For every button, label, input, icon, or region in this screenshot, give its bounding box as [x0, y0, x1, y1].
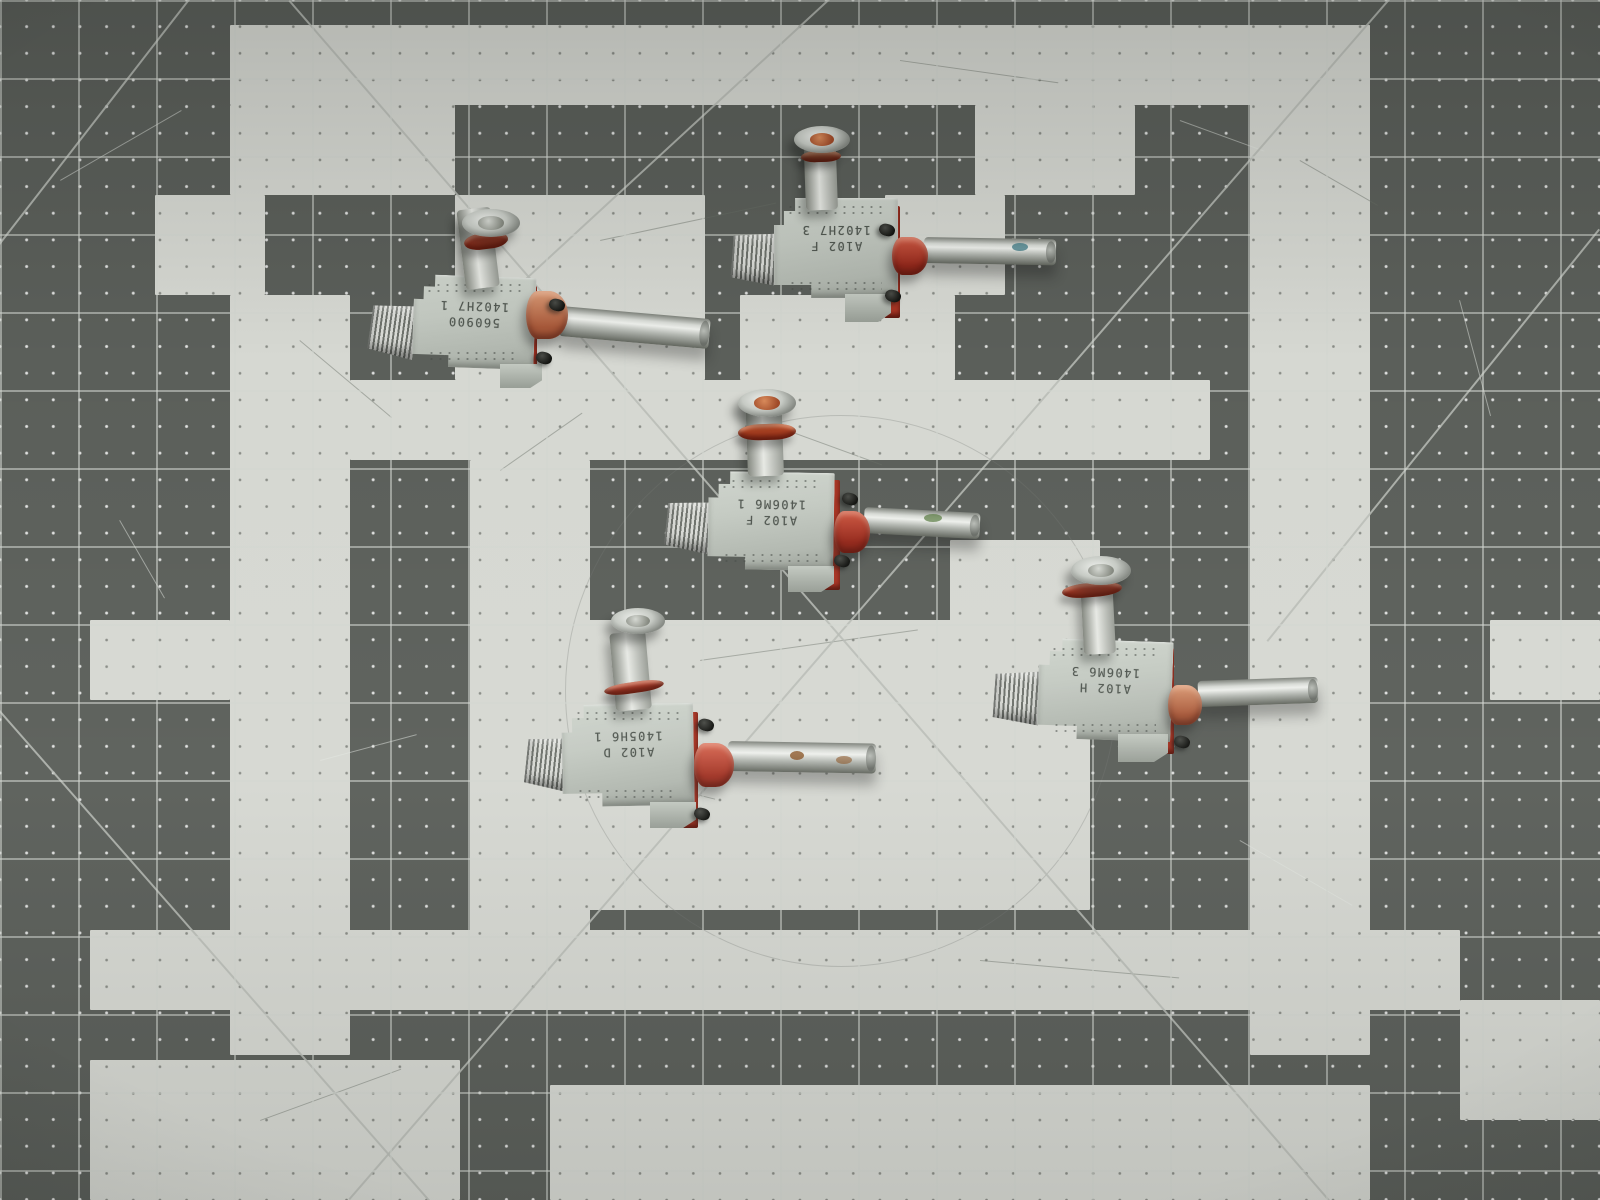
mat-scratch-arc [565, 415, 1117, 967]
mat-light-square [885, 195, 1005, 295]
photo-cutting-mat-scene: 5609001402H7 1A102 F1402H7 3A102 F1406M6… [0, 0, 1600, 1200]
mat-light-square [230, 25, 1370, 105]
mat-light-square [455, 195, 705, 380]
mat-light-square [1250, 25, 1370, 1055]
mat-light-square [1490, 620, 1600, 700]
mat-light-square [740, 295, 955, 380]
mat-light-square [1460, 1000, 1600, 1120]
mat-light-square [550, 1085, 1370, 1200]
mat-light-square [975, 105, 1135, 195]
mat-light-square [155, 195, 265, 295]
mat-light-square [230, 105, 455, 195]
mat-light-square [90, 620, 230, 700]
mat-light-square [90, 1060, 460, 1200]
